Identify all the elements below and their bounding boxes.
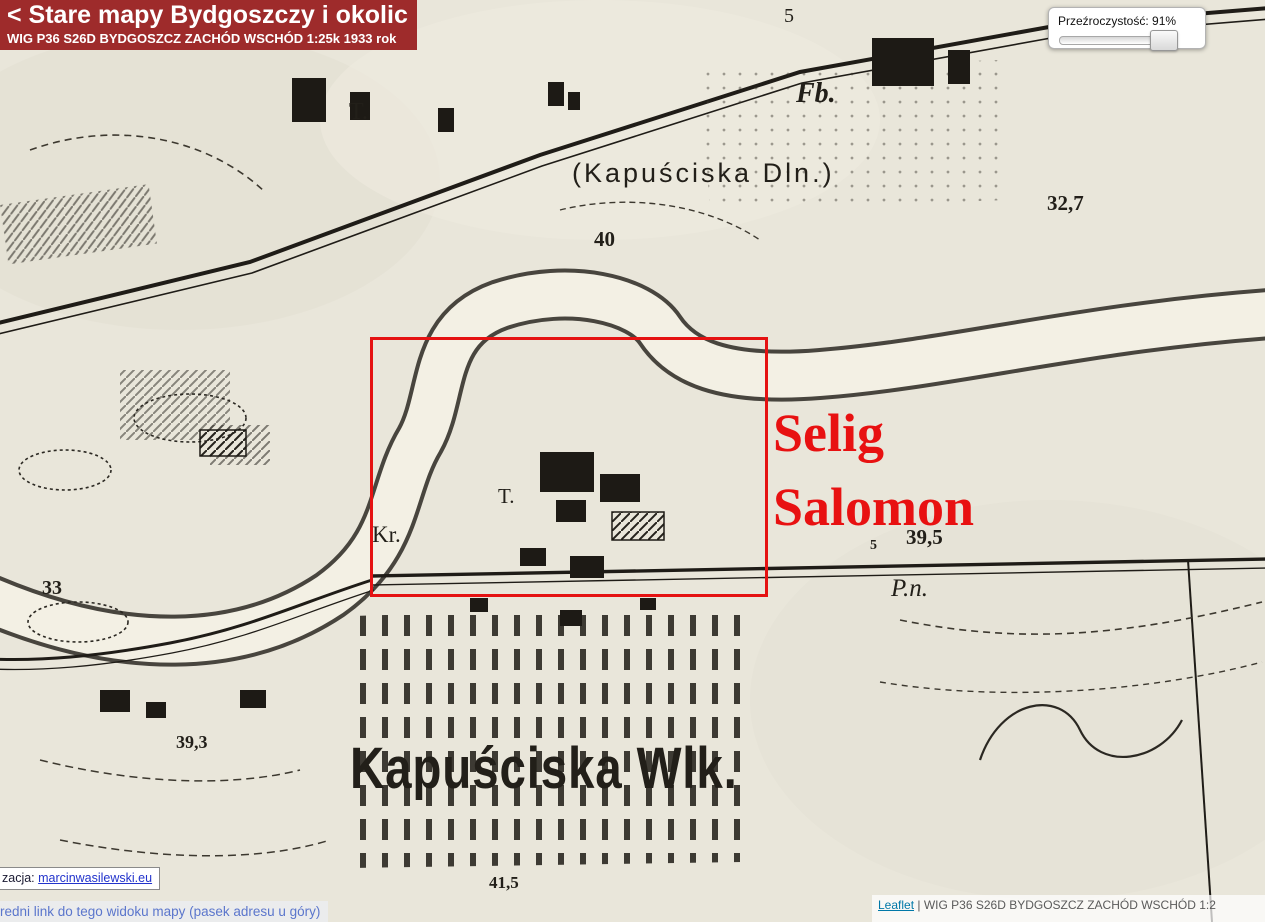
map-label: 41,5 bbox=[489, 874, 519, 891]
annotation-text: Selig Salomon bbox=[773, 396, 974, 544]
map-label: 40 bbox=[594, 229, 615, 250]
map-label: (Kapuściska Dln.) bbox=[572, 160, 835, 187]
map-sheet-subtitle: WIG P36 S26D BYDGOSZCZ ZACHÓD WSCHÓD 1:2… bbox=[7, 31, 408, 46]
map-viewport[interactable]: 5T.Fb.(Kapuściska Dln.)32,74033Kr.T.539,… bbox=[0, 0, 1265, 922]
opacity-label: Przeźroczystość: 91% bbox=[1058, 14, 1205, 28]
map-label: T. bbox=[349, 100, 368, 124]
map-label: 32,7 bbox=[1047, 193, 1084, 214]
annotation-line1: Selig bbox=[773, 396, 974, 470]
highlight-rectangle bbox=[370, 337, 768, 597]
credit-box: zacja: marcinwasilewski.eu bbox=[0, 867, 160, 890]
author-link[interactable]: marcinwasilewski.eu bbox=[38, 871, 152, 885]
permalink-link[interactable]: redni link do tego widoku mapy (pasek ad… bbox=[0, 901, 328, 922]
annotation-line2: Salomon bbox=[773, 470, 974, 544]
attribution-text: WIG P36 S26D BYDGOSZCZ ZACHÓD WSCHÓD 1:2 bbox=[924, 898, 1216, 912]
map-label: 5 bbox=[784, 6, 794, 26]
map-label: 39,3 bbox=[176, 733, 208, 751]
map-label: Kapuściska Wlk. bbox=[350, 740, 738, 798]
map-label: Fb. bbox=[796, 80, 836, 108]
back-title-link[interactable]: < Stare mapy Bydgoszczy i okolic bbox=[7, 0, 408, 31]
opacity-control: Przeźroczystość: 91% bbox=[1048, 7, 1206, 49]
credit-prefix: zacja: bbox=[2, 871, 38, 885]
attribution-bar: Leaflet | WIG P36 S26D BYDGOSZCZ ZACHÓD … bbox=[872, 895, 1265, 922]
app-header: < Stare mapy Bydgoszczy i okolic WIG P36… bbox=[0, 0, 417, 50]
opacity-slider-handle[interactable] bbox=[1150, 30, 1178, 51]
leaflet-link[interactable]: Leaflet bbox=[878, 898, 914, 912]
attribution-separator: | bbox=[914, 898, 924, 912]
map-label: 33 bbox=[42, 578, 62, 598]
map-label: P.n. bbox=[891, 576, 928, 601]
